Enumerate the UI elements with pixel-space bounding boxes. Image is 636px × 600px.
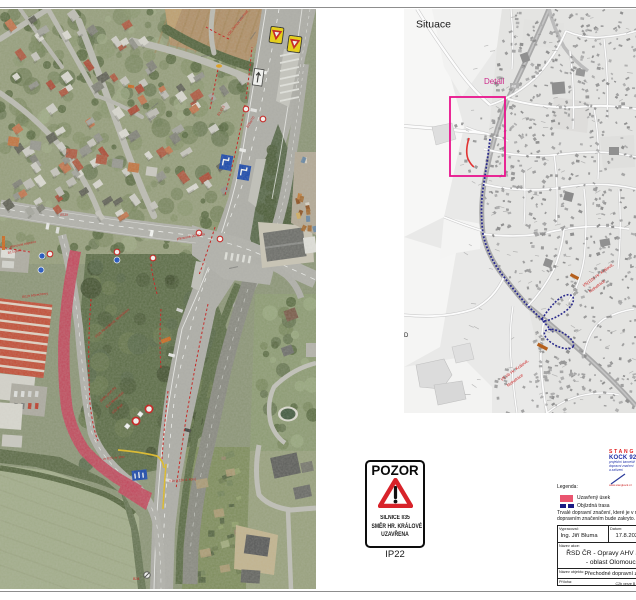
svg-text:D: D [404, 333, 409, 339]
svg-text:48: 48 [512, 84, 517, 89]
svg-text:Situace: Situace [416, 19, 451, 31]
svg-text:Detail: Detail [484, 77, 505, 86]
